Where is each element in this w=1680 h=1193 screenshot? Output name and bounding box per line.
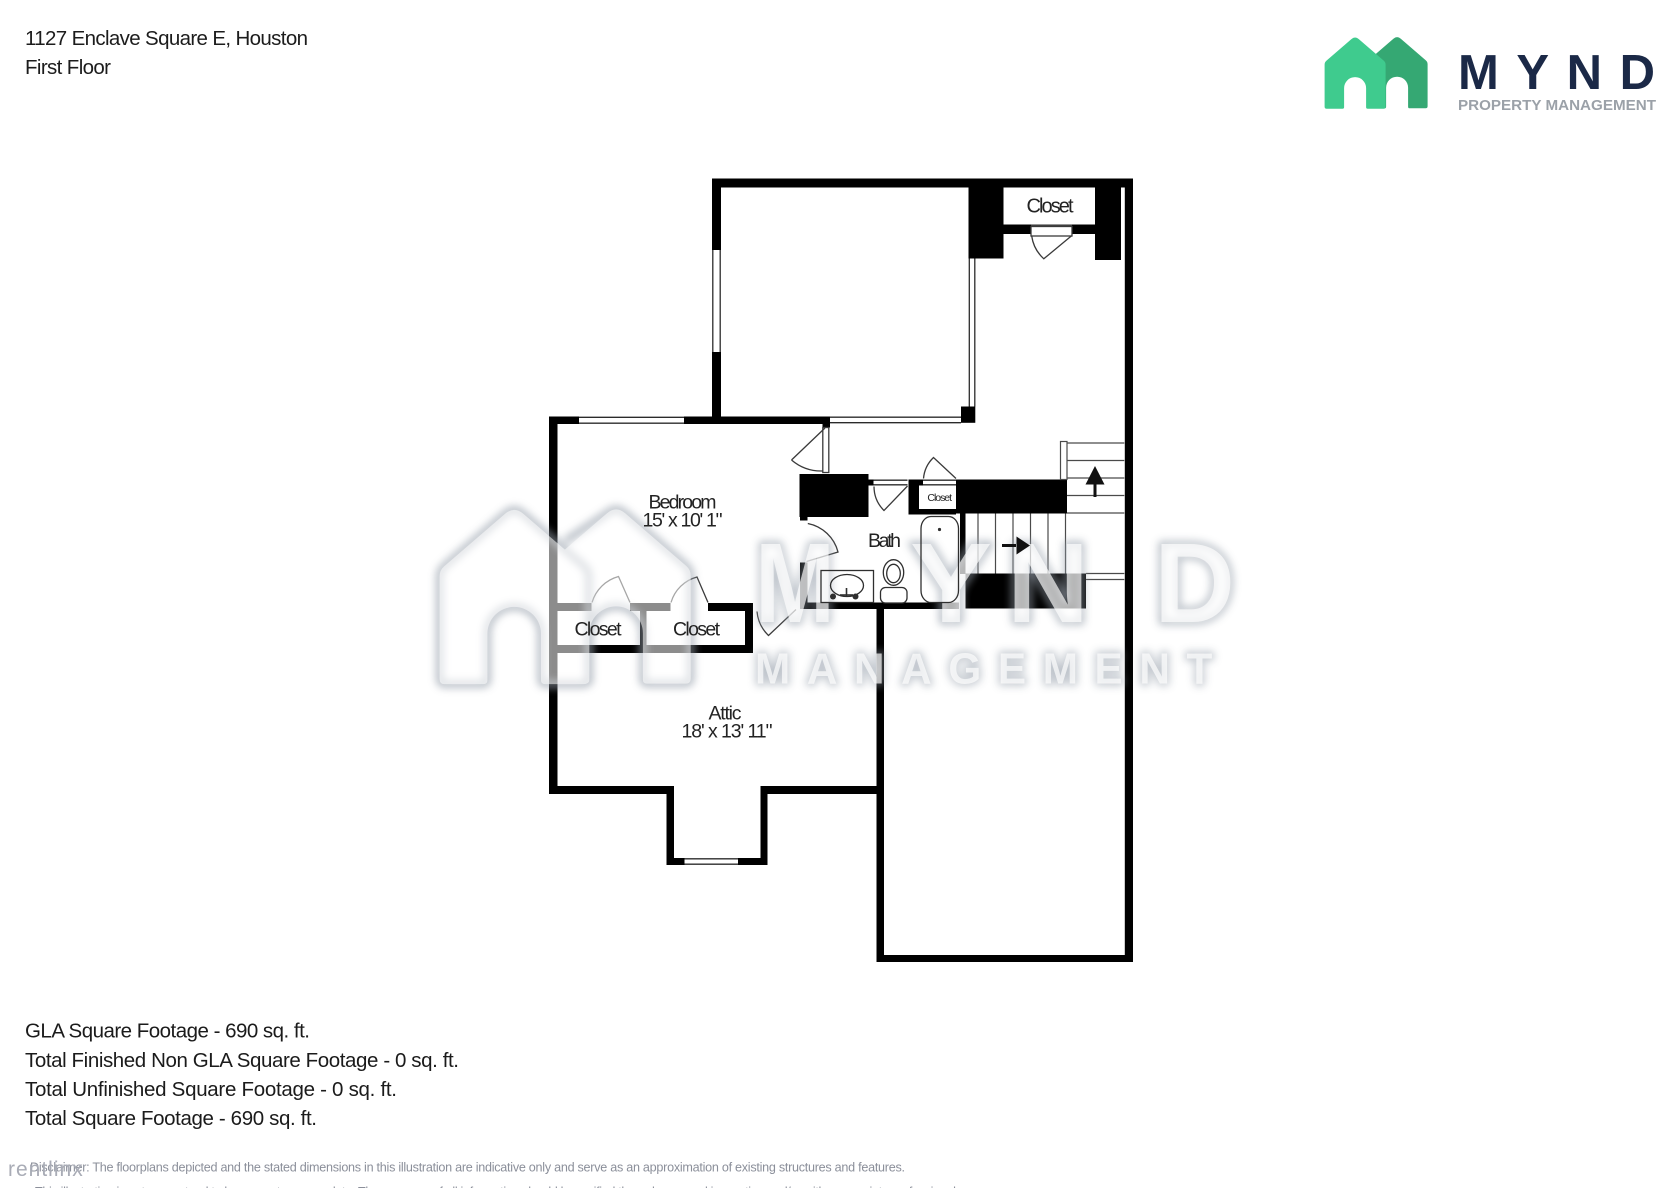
svg-text:First Floor: First Floor (25, 56, 111, 79)
svg-text:GLA Square Footage - 690 sq. f: GLA Square Footage - 690 sq. ft. (25, 1020, 310, 1043)
svg-text:Total Square Footage - 690 sq.: Total Square Footage - 690 sq. ft. (25, 1107, 317, 1130)
svg-text:Y: Y (910, 520, 992, 646)
svg-text:18' x 13' 11": 18' x 13' 11" (682, 721, 773, 743)
svg-text:D: D (1154, 520, 1235, 646)
svg-text:Closet: Closet (673, 619, 721, 641)
svg-text:Disclaimer: The floorplans dep: Disclaimer: The floorplans depicted and … (30, 1161, 905, 1175)
svg-text:Closet: Closet (927, 492, 952, 504)
svg-text:PROPERTY MANAGEMENT: PROPERTY MANAGEMENT (1458, 97, 1657, 114)
svg-text:Closet: Closet (1027, 196, 1074, 218)
svg-text:Total Finished Non GLA Square: Total Finished Non GLA Square Footage - … (25, 1049, 459, 1072)
svg-text:Total Unfinished Square Footag: Total Unfinished Square Footage - 0 sq. … (25, 1078, 397, 1101)
svg-text:1127 Enclave Square E, Houston: 1127 Enclave Square E, Houston (25, 27, 308, 50)
svg-text:MANAGEMENT: MANAGEMENT (755, 645, 1229, 694)
svg-text:MYND: MYND (1458, 46, 1655, 100)
svg-text:M: M (755, 520, 835, 646)
svg-text:15' x 10' 1": 15' x 10' 1" (643, 510, 723, 532)
svg-text:Closet: Closet (575, 619, 623, 641)
svg-text:Bath: Bath (868, 530, 901, 552)
svg-text:rentlinx: rentlinx (8, 1158, 84, 1181)
